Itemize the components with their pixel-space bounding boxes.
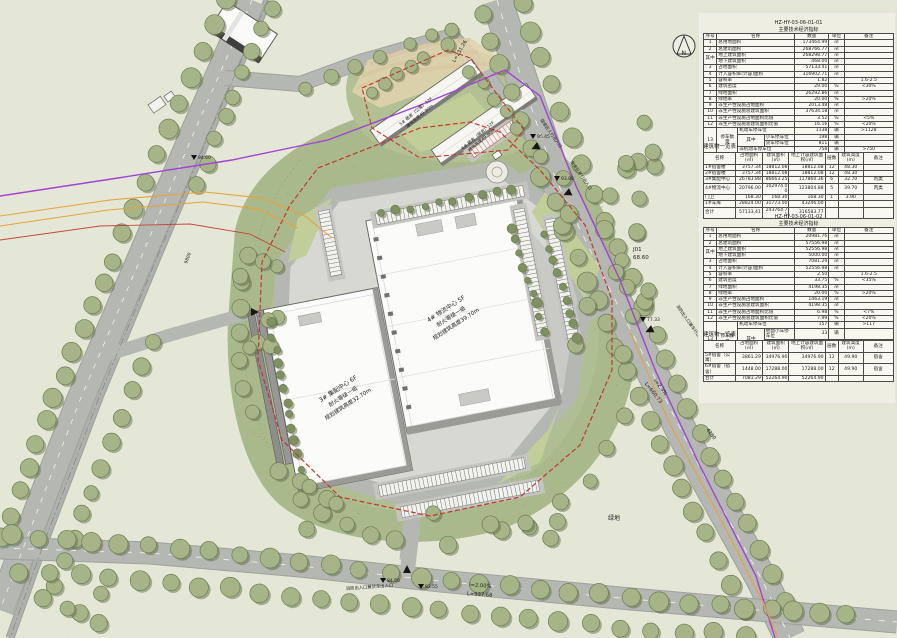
tree-symbol: [518, 263, 527, 272]
tree-symbol: [622, 588, 640, 606]
table-cell: 18812.08: [762, 164, 789, 170]
tree-symbol: [254, 21, 269, 36]
tree-symbol: [100, 569, 117, 586]
texture-dot: [355, 7, 356, 8]
tree-symbol: [200, 542, 218, 560]
table-cell: 102974.00: [762, 183, 789, 195]
tree-symbol: [552, 494, 568, 510]
tree-symbol: [267, 317, 276, 326]
table-header-cell: 备注: [863, 153, 893, 165]
tree-symbol: [712, 596, 729, 613]
table-cell: 28824.00: [736, 201, 763, 207]
tree-symbol: [649, 592, 669, 612]
texture-dot: [262, 302, 263, 303]
table-header-cell: 建筑面积(㎡): [762, 341, 789, 353]
texture-dot: [386, 174, 387, 175]
tree-symbol: [348, 59, 362, 73]
tree-symbol: [525, 277, 531, 283]
tree-symbol: [181, 68, 201, 88]
tree-symbol: [664, 456, 684, 476]
tree-symbol: [207, 131, 222, 146]
tree-symbol: [739, 514, 757, 532]
tree-symbol: [570, 249, 586, 265]
tree-symbol: [595, 221, 613, 239]
tree-symbol: [274, 346, 281, 353]
texture-dot: [55, 0, 56, 1]
tree-symbol: [205, 15, 225, 35]
tree-symbol: [482, 516, 499, 533]
texture-dot: [138, 424, 139, 425]
tree-symbol: [299, 521, 315, 537]
tree-symbol: [651, 436, 668, 453]
tree-symbol: [109, 535, 128, 554]
texture-dot: [532, 573, 533, 574]
tree-symbol: [543, 530, 559, 546]
texture-dot: [651, 504, 652, 505]
texture-dot: [522, 533, 523, 534]
texture-dot: [1, 158, 2, 159]
table-row: 6#宿舍（宿舍）1448.0017288.0017288.001249.90宿舍: [704, 364, 894, 376]
tree-symbol: [231, 352, 247, 368]
texture-dot: [593, 121, 594, 122]
texture-dot: [607, 371, 608, 372]
tree-symbol: [72, 565, 91, 584]
tree-symbol: [243, 43, 259, 59]
tree-symbol: [511, 235, 519, 243]
tree-symbol: [391, 205, 400, 214]
texture-dot: [357, 510, 358, 511]
table-header-cell: 备注: [863, 341, 893, 353]
texture-dot: [117, 144, 118, 145]
texture-dot: [32, 216, 33, 217]
tree-symbol: [577, 272, 597, 292]
tree-symbol: [113, 410, 130, 427]
tree-symbol: [810, 603, 830, 623]
texture-dot: [785, 438, 786, 439]
table-cell: 其中: [704, 52, 717, 65]
tree-symbol: [140, 537, 156, 553]
tree-symbol: [285, 410, 292, 417]
texture-dot: [583, 104, 584, 105]
texture-dot: [524, 505, 525, 506]
texture-dot: [355, 496, 356, 497]
tree-symbol: [710, 552, 727, 569]
texture-dot: [548, 494, 549, 495]
table-header-cell: 建筑面积(㎡): [762, 153, 789, 165]
table-cell: 1448.00: [736, 364, 763, 376]
table-header-cell: 建筑高度(m): [838, 153, 863, 165]
tree-symbol: [546, 246, 553, 253]
table-cell: 合计: [704, 375, 736, 381]
tree-symbol: [493, 187, 501, 195]
tree-symbol: [324, 69, 339, 84]
texture-dot: [328, 626, 329, 627]
tree-symbol: [243, 341, 256, 354]
texture-dot: [133, 471, 134, 472]
texture-dot: [367, 26, 368, 27]
table-caption: 建筑物一览表: [703, 332, 894, 339]
tree-symbol: [231, 324, 248, 341]
tree-symbol: [559, 584, 578, 603]
tree-symbol: [284, 399, 293, 408]
texture-dot: [172, 293, 173, 294]
tree-symbol: [619, 279, 634, 294]
texture-dot: [287, 193, 288, 194]
tree-symbol: [194, 42, 212, 60]
texture-dot: [414, 173, 415, 174]
texture-dot: [234, 605, 235, 606]
green-land-label: 绿地: [608, 514, 620, 522]
tree-symbol: [426, 506, 440, 520]
table-cell: 丙类: [863, 183, 893, 195]
tree-symbol: [443, 572, 460, 589]
tree-symbol: [350, 562, 366, 578]
tree-symbol: [286, 424, 295, 433]
texture-dot: [266, 91, 267, 92]
tree-symbol: [378, 209, 385, 216]
texture-dot: [88, 55, 89, 56]
tree-symbol: [75, 320, 93, 338]
tree-symbol: [84, 486, 98, 500]
tree-symbol: [532, 298, 542, 308]
tree-symbol: [402, 598, 421, 617]
texture-dot: [9, 108, 10, 109]
texture-dot: [403, 627, 404, 628]
texture-dot: [39, 280, 40, 281]
tree-symbol: [313, 591, 330, 608]
tree-symbol: [137, 174, 154, 191]
tree-symbol: [673, 479, 691, 497]
texture-dot: [23, 31, 24, 32]
tree-symbol: [572, 333, 582, 343]
table-cell: 其中: [704, 246, 717, 259]
texture-dot: [858, 420, 859, 421]
tree-symbol: [329, 496, 344, 511]
tree-symbol: [531, 167, 551, 187]
texture-dot: [476, 629, 477, 630]
tree-symbol: [95, 274, 113, 292]
table-cell: 12: [825, 364, 838, 376]
table-cell: 34976.90: [762, 352, 789, 364]
table-cell: 6#宿舍（宿舍）: [704, 364, 736, 376]
texture-dot: [179, 590, 180, 591]
tree-symbol: [302, 479, 316, 493]
building-list-table-dorm-plot: 建筑物一览表名称占地面积(㎡)建筑面积(㎡)地上计容建筑面积(㎡)层数建筑高度(…: [703, 332, 894, 382]
tree-symbol: [282, 588, 300, 606]
tree-symbol: [439, 536, 456, 553]
texture-dot: [610, 428, 611, 429]
texture-dot: [191, 206, 192, 207]
tree-symbol: [163, 574, 180, 591]
tree-symbol: [379, 77, 392, 90]
building-list-table-main-plot: 建筑物一览表名称占地面积(㎡)建筑面积(㎡)地上计容建筑面积(㎡)层数建筑高度(…: [703, 144, 894, 219]
tree-symbol: [642, 411, 660, 429]
tree-symbol: [598, 314, 615, 331]
tree-symbol: [462, 66, 475, 79]
tree-symbol: [668, 375, 685, 392]
texture-dot: [762, 537, 763, 538]
texture-dot: [195, 428, 196, 429]
tree-symbol: [630, 387, 648, 405]
tree-symbol: [289, 436, 299, 446]
texture-dot: [488, 156, 489, 157]
texture-dot: [55, 629, 56, 630]
tree-symbol: [645, 144, 661, 160]
table-cell: 52264.90: [762, 375, 789, 381]
tree-symbol: [10, 564, 28, 582]
tree-symbol: [531, 47, 550, 66]
tree-symbol: [763, 565, 782, 584]
tree-symbol: [704, 622, 723, 638]
tree-symbol: [293, 492, 308, 507]
texture-dot: [291, 582, 292, 583]
texture-dot: [746, 426, 747, 427]
table-header-cell: 层数: [825, 341, 838, 353]
tree-symbol: [159, 119, 178, 138]
texture-dot: [674, 318, 675, 319]
table-header-cell: 序号: [704, 228, 717, 234]
tree-symbol: [27, 436, 44, 453]
tree-symbol: [500, 576, 519, 595]
texture-dot: [353, 166, 354, 167]
table-header-cell: 名称: [704, 153, 736, 165]
texture-dot: [199, 290, 200, 291]
tree-symbol: [475, 6, 492, 23]
texture-dot: [666, 56, 667, 57]
spot-elevation-value: 77.33: [647, 317, 660, 323]
texture-dot: [616, 384, 617, 385]
tree-symbol: [426, 29, 438, 41]
texture-dot: [243, 634, 244, 635]
texture-dot: [135, 420, 136, 421]
tree-symbol: [90, 615, 107, 632]
tree-symbol: [219, 108, 234, 123]
tree-symbol: [783, 601, 803, 621]
tree-symbol: [602, 188, 618, 204]
texture-dot: [643, 471, 644, 472]
texture-dot: [516, 152, 517, 153]
texture-dot: [167, 384, 168, 385]
tree-symbol: [94, 586, 109, 601]
texture-dot: [678, 100, 679, 101]
tree-symbol: [130, 571, 150, 591]
texture-dot: [554, 493, 555, 494]
texture-dot: [551, 459, 552, 460]
tree-symbol: [504, 84, 520, 100]
tree-symbol: [232, 299, 250, 317]
tree-symbol: [12, 482, 28, 498]
texture-dot: [230, 145, 231, 146]
tree-symbol: [500, 105, 513, 118]
table-cell: 3861.29: [736, 352, 763, 364]
tree-symbol: [559, 283, 566, 290]
tree-symbol: [548, 612, 567, 631]
tree-symbol: [478, 190, 486, 198]
spot-elevation-value: 94.60: [198, 155, 211, 161]
texture-dot: [785, 432, 786, 433]
texture-dot: [409, 23, 410, 24]
table-cell: 4#物流中心: [704, 183, 736, 195]
texture-dot: [254, 496, 255, 497]
texture-dot: [147, 204, 148, 205]
table-cell: 34976.90: [789, 352, 825, 364]
texture-dot: [542, 22, 543, 23]
tree-symbol: [2, 525, 22, 545]
tree-symbol: [38, 410, 57, 429]
texture-dot: [687, 369, 688, 370]
table-cell: 17288.00: [762, 364, 789, 376]
tree-symbol: [2, 508, 19, 525]
tree-symbol: [837, 605, 855, 623]
table-header-row: 名称占地面积(㎡)建筑面积(㎡)地上计容建筑面积(㎡)层数建筑高度(m)备注: [704, 341, 894, 353]
tree-symbol: [582, 614, 599, 631]
tree-symbol: [566, 309, 574, 317]
texture-dot: [829, 517, 830, 518]
texture-dot: [228, 187, 229, 188]
texture-dot: [25, 247, 26, 248]
indicator-table-main-plot: HZ-HY-03-06-01-01主要技术经济指标序号名称数量单位备注1总用地面…: [703, 20, 894, 153]
tree-symbol: [103, 433, 121, 451]
tree-symbol: [341, 594, 358, 611]
tree-symbol: [465, 193, 473, 201]
texture-dot: [835, 415, 836, 416]
tree-symbol: [520, 22, 540, 42]
tree-symbol: [612, 620, 629, 637]
spot-elevation-value: 82.55: [425, 584, 438, 590]
texture-dot: [486, 630, 487, 631]
texture-dot: [580, 500, 581, 501]
texture-dot: [245, 323, 246, 324]
tree-symbol: [449, 198, 456, 205]
texture-dot: [893, 482, 894, 483]
tree-symbol: [734, 599, 754, 619]
table-cell: 52264.90: [789, 375, 825, 381]
tree-symbol: [550, 102, 568, 120]
texture-dot: [847, 497, 848, 498]
texture-dot: [93, 68, 94, 69]
data-table: 序号名称数量单位备注1总用地面积173464.99㎡2总建筑面积268766.7…: [703, 33, 894, 153]
tree-symbol: [569, 319, 577, 327]
tree-symbol: [62, 342, 81, 361]
table-header-cell: 名称: [704, 341, 736, 353]
table-header-cell: 层数: [825, 153, 838, 165]
tree-symbol: [407, 206, 414, 213]
tree-symbol: [321, 555, 340, 574]
texture-dot: [458, 540, 459, 541]
tree-symbol: [632, 191, 647, 206]
table-cell: 49.90: [838, 352, 863, 364]
texture-dot: [815, 595, 816, 596]
tree-symbol: [56, 367, 74, 385]
tree-symbol: [390, 67, 403, 80]
table-header-cell: 序号: [704, 34, 717, 40]
tree-symbol: [549, 256, 557, 264]
tree-symbol: [507, 224, 516, 233]
tree-symbol: [235, 381, 251, 397]
tree-symbol: [518, 515, 533, 530]
table-cell: 17288.00: [789, 364, 825, 376]
texture-dot: [665, 41, 666, 42]
tree-symbol: [232, 547, 248, 563]
texture-dot: [632, 53, 633, 54]
tree-symbol: [148, 146, 165, 163]
tree-symbol: [721, 575, 740, 594]
tree-symbol: [290, 553, 308, 571]
texture-dot: [750, 474, 751, 475]
tree-symbol: [579, 297, 596, 314]
table-row: 5#宿舍（公寓）3861.2934976.9034976.901249.90宿舍: [704, 352, 894, 364]
table-cell: 宿舍: [863, 352, 893, 364]
texture-dot: [647, 622, 648, 623]
texture-dot: [268, 536, 269, 537]
texture-dot: [62, 512, 63, 513]
tree-symbol: [404, 38, 416, 50]
data-table: 名称占地面积(㎡)建筑面积(㎡)地上计容建筑面积(㎡)层数建筑高度(m)备注5#…: [703, 340, 894, 382]
table-cell: 86663.25: [762, 177, 789, 183]
table-cell: 7081.29: [736, 375, 763, 381]
tree-symbol: [373, 50, 386, 63]
tree-symbol: [170, 95, 187, 112]
table-header-cell: 占地面积(㎡): [736, 153, 763, 165]
tree-symbol: [599, 440, 615, 456]
table-caption: 建筑物一览表: [703, 144, 894, 151]
tree-symbol: [583, 474, 597, 488]
tree-symbol: [643, 623, 659, 638]
tree-symbol: [60, 601, 75, 616]
tree-symbol: [618, 155, 633, 170]
table-cell: 39.70: [838, 183, 863, 195]
tree-symbol: [680, 595, 698, 613]
texture-dot: [281, 97, 282, 98]
data-table: 名称占地面积(㎡)建筑面积(㎡)地上计容建筑面积(㎡)层数建筑高度(m)备注1#…: [703, 152, 894, 219]
table-cell: 31773.00: [762, 201, 789, 207]
texture-dot: [85, 172, 86, 173]
texture-dot: [823, 468, 824, 469]
table-header-row: 名称占地面积(㎡)建筑面积(㎡)地上计容建筑面积(㎡)层数建筑高度(m)备注: [704, 153, 894, 165]
texture-dot: [18, 122, 19, 123]
tree-symbol: [293, 449, 302, 458]
tree-symbol: [299, 82, 312, 95]
tree-symbol: [530, 290, 536, 296]
tree-symbol: [145, 334, 160, 349]
texture-dot: [9, 282, 10, 283]
table-cell: 12: [825, 352, 838, 364]
table-header-cell: 地上计容建筑面积(㎡): [789, 341, 825, 353]
tree-symbol: [30, 530, 47, 547]
tree-symbol: [41, 565, 58, 582]
tree-symbol: [491, 607, 510, 626]
table-header-cell: 地上计容建筑面积(㎡): [789, 153, 825, 165]
north-arrow-icon: N: [673, 35, 695, 57]
texture-dot: [254, 506, 255, 507]
tree-symbol: [74, 505, 90, 521]
tree-symbol: [541, 328, 549, 336]
table-cell: 宿舍: [863, 364, 893, 376]
table-cell: 20796.00: [736, 183, 763, 195]
texture-dot: [3, 21, 4, 22]
texture-dot: [189, 270, 190, 271]
texture-dot: [145, 101, 146, 102]
texture-dot: [590, 79, 591, 80]
table-cell: [825, 375, 838, 381]
table-header-cell: 建筑高度(m): [838, 341, 863, 353]
table-cell: 5: [825, 183, 838, 195]
texture-dot: [252, 483, 253, 484]
tree-symbol: [422, 203, 428, 209]
tree-symbol: [697, 524, 714, 541]
tree-symbol: [386, 531, 404, 549]
tree-symbol: [279, 384, 287, 392]
